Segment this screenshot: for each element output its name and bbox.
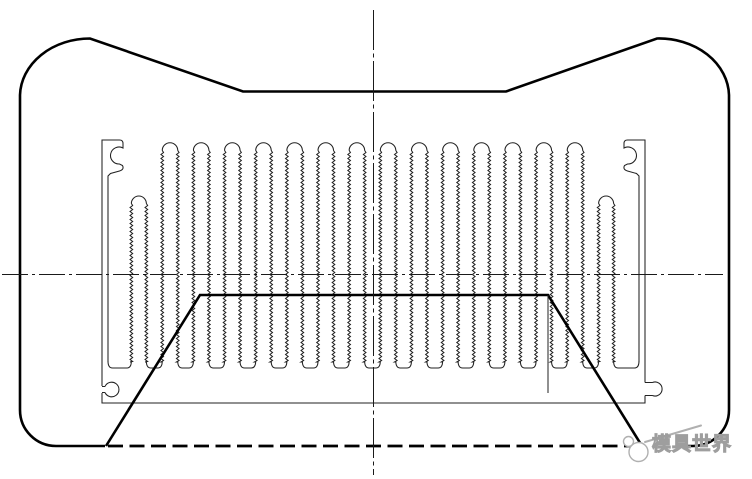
fin-cap	[505, 143, 521, 151]
short-fin	[130, 196, 148, 362]
fin-right-edge	[426, 151, 429, 363]
fin-cap	[287, 143, 303, 151]
cad-drawing-canvas	[0, 0, 752, 479]
channel-bottom	[614, 361, 639, 368]
fin	[410, 143, 428, 362]
fin	[254, 143, 272, 362]
fin-left-edge	[566, 151, 569, 363]
fin-cap	[162, 143, 178, 151]
fin-left-edge	[192, 151, 195, 363]
fin-right-edge	[550, 151, 553, 363]
fin-right-edge	[581, 151, 584, 363]
fin-right-edge	[301, 151, 304, 363]
outer-contour	[20, 38, 729, 446]
fin-left-edge	[410, 151, 413, 363]
fin-left-edge	[286, 151, 289, 363]
left-screw-notch	[102, 382, 119, 397]
fin-left-edge	[597, 204, 600, 363]
fin-cap	[411, 143, 427, 151]
fin-right-edge	[270, 151, 273, 363]
right-end-wall	[624, 140, 645, 383]
fin-cap	[349, 143, 365, 151]
short-fin	[597, 196, 615, 362]
fin-left-edge	[535, 151, 538, 363]
fin	[192, 143, 210, 362]
fin-right-edge	[519, 151, 522, 363]
fin-right-edge	[457, 151, 460, 363]
fin-left-edge	[472, 151, 475, 363]
fin-cap	[256, 143, 272, 151]
fin	[535, 143, 553, 362]
fin-left-edge	[130, 204, 133, 363]
fin	[161, 143, 179, 362]
fin-right-edge	[612, 204, 615, 363]
cad-drawing-page: 模具世界	[0, 0, 752, 479]
fin	[441, 143, 459, 362]
fin	[223, 143, 241, 362]
watermark-orbit-icon	[624, 437, 634, 447]
fin-right-edge	[208, 151, 211, 363]
fin-cap	[380, 143, 396, 151]
fin-right-edge	[363, 151, 366, 363]
channel-bottom	[108, 361, 131, 368]
fin-right-edge	[332, 151, 335, 363]
left-end-wall	[102, 140, 123, 386]
fin-right-edge	[395, 151, 398, 363]
fin-left-edge	[441, 151, 444, 363]
fin-cap	[131, 196, 146, 203]
fin-cap	[318, 143, 334, 151]
fin-cap	[225, 143, 241, 151]
fin-cap	[536, 143, 552, 151]
fin	[348, 143, 366, 362]
fin-right-edge	[488, 151, 491, 363]
fin-cap	[567, 143, 583, 151]
right-hinge-bulb	[645, 382, 662, 396]
fin-cap	[443, 143, 459, 151]
heatsink-profile	[102, 140, 662, 403]
fin-left-edge	[161, 151, 164, 363]
fin-left-edge	[254, 151, 257, 363]
fin-cap	[474, 143, 490, 151]
fin-cap	[599, 196, 614, 203]
fin-left-edge	[223, 151, 226, 363]
fin	[286, 143, 304, 362]
fin-left-edge	[504, 151, 507, 363]
fin-left-edge	[348, 151, 351, 363]
fin-right-edge	[145, 204, 148, 363]
fin-right-edge	[239, 151, 242, 363]
fin-left-edge	[317, 151, 320, 363]
fin	[317, 143, 335, 362]
fin-cap	[193, 143, 209, 151]
fin	[379, 143, 397, 362]
fin-left-edge	[379, 151, 382, 363]
fin	[472, 143, 490, 362]
watermark-text: 模具世界	[652, 434, 732, 455]
fin	[504, 143, 522, 362]
